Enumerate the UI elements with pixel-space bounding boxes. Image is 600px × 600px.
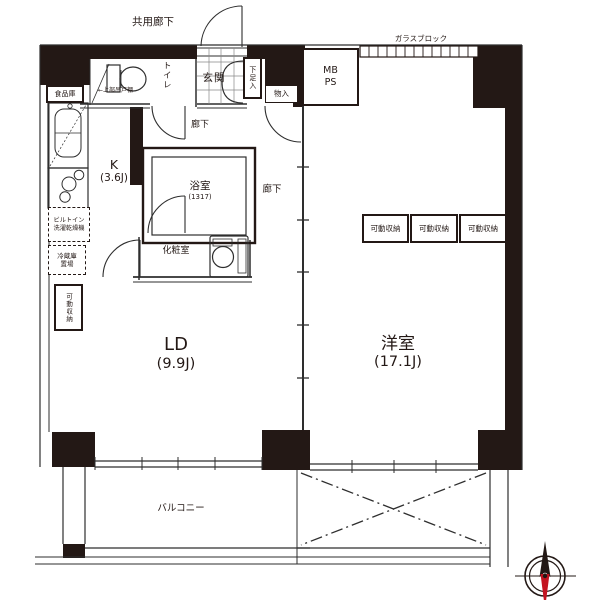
storage-side-box: 可動収納 (54, 284, 83, 331)
bathroom-label: 浴室 (1317) (170, 180, 230, 201)
balcony-lines (35, 467, 508, 567)
storage-box-1: 可動収納 (362, 214, 409, 243)
structure-lines (40, 45, 522, 470)
entrance-label: 玄関 (188, 72, 240, 85)
mb-ps-box: MB PS (302, 48, 359, 106)
shoe-cabinet-door-arc (222, 82, 243, 103)
balcony-label: バルコニー (141, 503, 221, 514)
powder-door-arc (103, 240, 140, 277)
storage-box-3: 可動収納 (459, 214, 507, 243)
entry-door-arc (201, 6, 242, 46)
washer-dryer-box: ビルトイン 洗濯乾燥機 (48, 207, 90, 242)
closet-door-arc (265, 106, 301, 142)
kitchen-sink-icon (48, 103, 88, 168)
x-brace (301, 473, 486, 545)
compass-icon (515, 541, 576, 600)
western-room-label: 洋室 (17.1J) (354, 334, 442, 372)
glass-block-strip (360, 46, 478, 57)
stove-icon (48, 168, 88, 208)
fridge-space-box: 冷蔵庫 置場 (48, 245, 86, 275)
toilet-label: トイレ (161, 61, 171, 90)
storage-box-2: 可動収納 (410, 214, 458, 243)
floor-plan-linework (0, 0, 600, 600)
hallway-lower-label: 廊下 (252, 184, 292, 195)
compass-north-needle (540, 541, 551, 577)
shoe-box: 下足入 (243, 57, 262, 99)
toilet-icon (92, 64, 146, 103)
kitchen-label: K (3.6J) (84, 157, 144, 185)
living-dining-label: LD (9.9J) (140, 334, 212, 373)
hallway-upper-label: 廊下 (180, 120, 220, 131)
common-corridor-label: 共用廊下 (113, 16, 193, 29)
glass-block-label: ガラスブロック (389, 34, 453, 43)
powder-room-label: 化粧室 (146, 246, 206, 257)
closet-box: 物入 (265, 85, 298, 103)
wall-segments (40, 45, 522, 558)
bath-door-arc (148, 196, 185, 233)
floor-plan: 共用廊下 ガラスブロック 玄関 トイレ ←上部吊戸棚 下足入 物入 MB PS … (0, 0, 600, 600)
pantry-box: 食品庫 (46, 85, 84, 103)
upper-cabinet-label: ←上部吊戸棚 (98, 87, 162, 94)
